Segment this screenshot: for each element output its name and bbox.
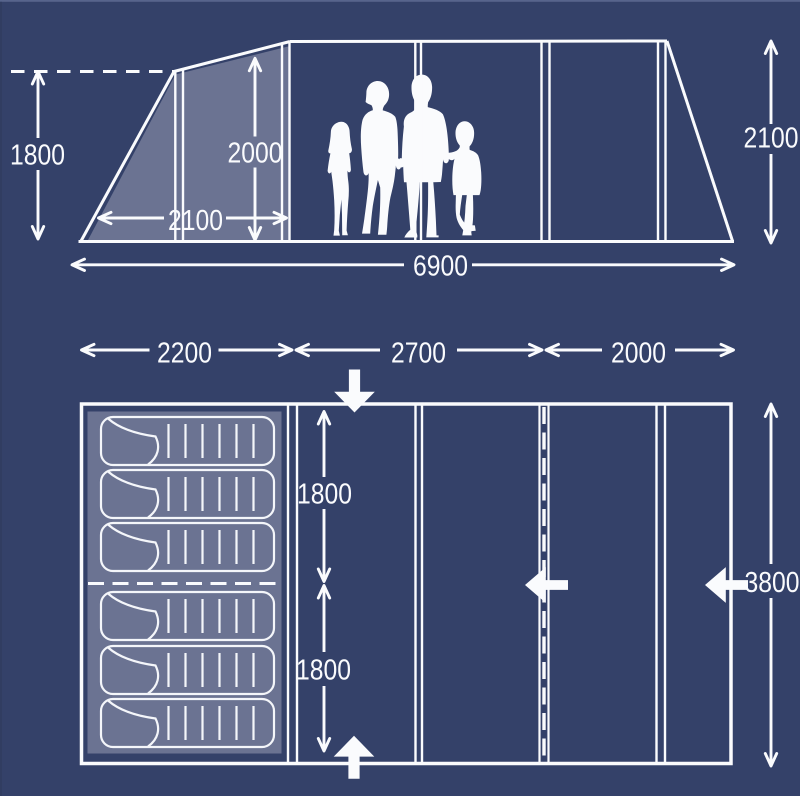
svg-text:2700: 2700 [391,337,446,369]
svg-text:2100: 2100 [744,123,799,155]
svg-text:1800: 1800 [296,655,351,687]
svg-text:2000: 2000 [611,337,666,369]
svg-text:1800: 1800 [297,479,352,511]
svg-text:2100: 2100 [168,205,223,237]
svg-text:2200: 2200 [157,337,212,369]
svg-text:2000: 2000 [228,138,283,170]
svg-text:6900: 6900 [413,251,468,283]
svg-text:3800: 3800 [745,567,800,599]
svg-text:1800: 1800 [10,140,65,172]
